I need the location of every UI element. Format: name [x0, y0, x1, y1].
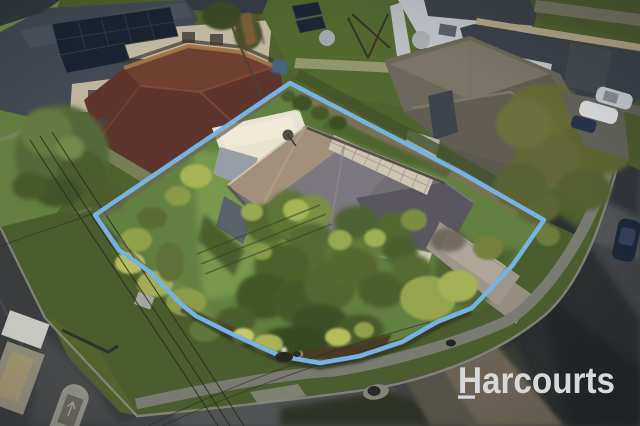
svg-text:Harcourts: Harcourts	[458, 360, 615, 401]
